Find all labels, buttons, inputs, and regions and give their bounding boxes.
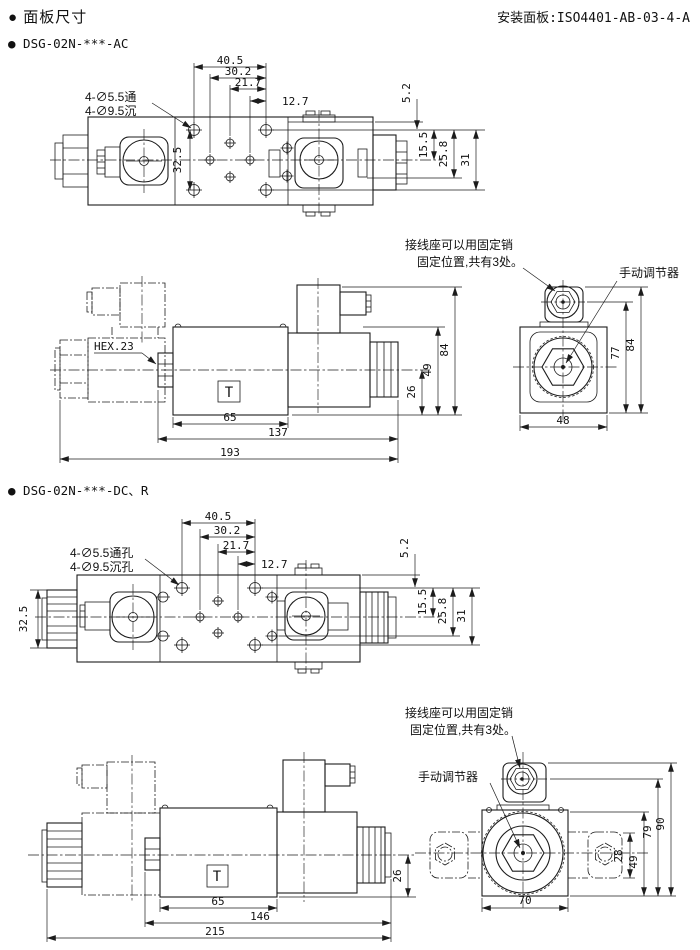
- section-label-dc: ● DSG-02N-***-DC、R: [8, 480, 148, 499]
- adjuster-label: 手动调节器: [619, 266, 679, 280]
- left-coil-fins: [42, 590, 110, 648]
- manual-adjuster-note: 手动调节器: [418, 770, 520, 848]
- dc-plan-view-drawing: 40.5 30.2 21.7 12.7 32.5 5.2 15.5 25.8 3…: [10, 500, 490, 690]
- port-label: T: [213, 869, 222, 885]
- pin-note-line2: 固定位置,共有3处。: [417, 254, 523, 269]
- dim-25-8: 25.8: [437, 141, 450, 168]
- valve-body: T: [145, 805, 277, 897]
- optional-left-solenoid-phantom: [55, 276, 165, 402]
- hole-note-line2: 4-∅9.5沉: [85, 104, 136, 118]
- right-solenoid: [269, 110, 367, 216]
- dim-31: 31: [459, 153, 472, 166]
- dim-70: 70: [518, 894, 531, 907]
- page-title: ● 面板尺寸: [8, 6, 87, 27]
- dim-146: 146: [250, 910, 270, 923]
- valve-end-body: [513, 280, 617, 423]
- hole-note-line1: 4-∅5.5通: [85, 90, 136, 104]
- dc-end-view-drawing: 接线座可以用固定销 固定位置,共有3处。 手动调节器: [400, 690, 700, 950]
- port-label: T: [225, 385, 234, 401]
- terminal-pin-note: 接线座可以用固定销 固定位置,共有3处。: [405, 237, 555, 291]
- dim-25-8: 25.8: [436, 598, 449, 625]
- dim-48: 48: [556, 414, 569, 427]
- hex-note: HEX.23: [94, 340, 156, 364]
- section-label-ac: ● DSG-02N-***-AC: [8, 36, 128, 51]
- dim-215: 215: [205, 925, 225, 938]
- dim-5-2: 5.2: [400, 83, 413, 103]
- dim-12-7: 12.7: [261, 558, 288, 571]
- left-solenoid: [120, 129, 168, 193]
- dim-31: 31: [455, 609, 468, 622]
- dim-30-2: 30.2: [214, 524, 241, 537]
- ac-end-view-drawing: 接线座可以用固定销 固定位置,共有3处。 手动调节器: [395, 235, 695, 450]
- pin-note-line1: 接线座可以用固定销: [405, 705, 513, 720]
- dim-32-5: 32.5: [171, 147, 184, 174]
- dim-90: 90: [654, 817, 667, 830]
- hole-note-leader: [152, 103, 191, 128]
- dimensions: 40.5 30.2 21.7 12.7 32.5 5.2 15.5 25.8 3…: [17, 510, 480, 648]
- terminal-pin-note: 接线座可以用固定销 固定位置,共有3处。: [405, 705, 520, 768]
- pin-note-line2: 固定位置,共有3处。: [410, 722, 516, 737]
- dim-65: 65: [211, 895, 224, 908]
- dim-137: 137: [268, 426, 288, 439]
- dc-side-view-drawing: T 26 65 14: [20, 700, 440, 950]
- dim-21-7: 21.7: [223, 539, 250, 552]
- hex-fitting: [145, 838, 160, 870]
- panel-dimensions-page: ● 面板尺寸 安装面板:ISO4401-AB-03-4-A ● DSG-02N-…: [0, 0, 700, 950]
- right-solenoid-assembly: [288, 278, 398, 413]
- dim-21-7: 21.7: [235, 76, 262, 89]
- dimensions: 26 65 146 215: [47, 855, 416, 942]
- hole-note-line1: 4-∅5.5通孔: [70, 546, 133, 560]
- dim-15-5: 15.5: [416, 589, 429, 616]
- dim-28: 28: [612, 849, 625, 862]
- mounting-holes: [156, 580, 279, 653]
- dim-49: 49: [627, 855, 640, 868]
- hole-note-leader: [145, 559, 179, 585]
- hex-note-label: HEX.23: [94, 340, 134, 353]
- adjuster-label: 手动调节器: [418, 770, 478, 784]
- terminal-block-ear: [501, 763, 547, 802]
- dim-77: 77: [609, 346, 622, 359]
- ac-plan-view-drawing: 40.5 30.2 21.7 12.7 5.2 15.5 25.8 31 32.…: [30, 55, 500, 240]
- optional-left-solenoid-phantom: [77, 755, 160, 902]
- dim-15-5: 15.5: [417, 132, 430, 159]
- dim-12-7: 12.7: [282, 95, 309, 108]
- right-coil-fins: [360, 592, 396, 643]
- dim-84: 84: [624, 338, 637, 352]
- pin-note-line1: 接线座可以用固定销: [405, 237, 513, 252]
- hole-note-line2: 4-∅9.5沉孔: [70, 560, 133, 574]
- right-connector: [373, 135, 407, 190]
- right-solenoid-assembly: [277, 752, 391, 902]
- dim-193: 193: [220, 446, 240, 459]
- dim-32-5: 32.5: [17, 606, 30, 633]
- valve-body: T: [158, 324, 288, 415]
- dim-65: 65: [223, 411, 236, 424]
- dimensions: 48 77 84: [520, 287, 648, 431]
- left-mounting-tab: [430, 832, 482, 878]
- right-solenoid: [277, 560, 348, 673]
- hole-note: 4-∅5.5通孔 4-∅9.5沉孔: [70, 546, 179, 585]
- dim-79: 79: [641, 825, 654, 838]
- dim-5-2: 5.2: [398, 538, 411, 558]
- dim-40-5: 40.5: [205, 510, 232, 523]
- mounting-panel-spec: 安装面板:ISO4401-AB-03-4-A: [497, 7, 690, 26]
